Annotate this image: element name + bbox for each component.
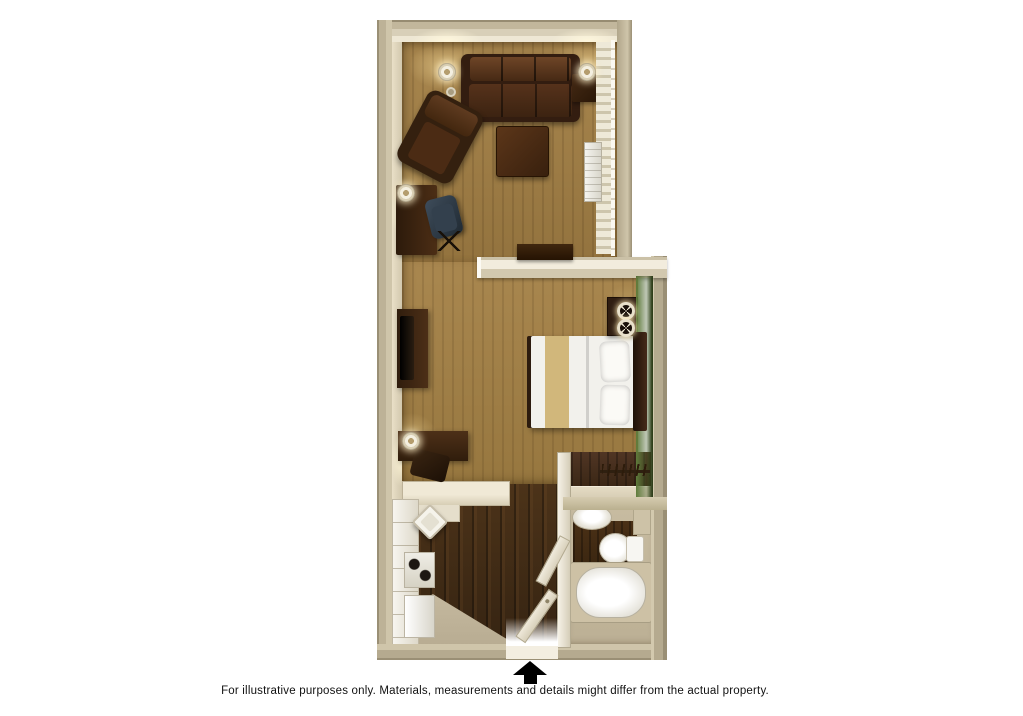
entrance-arrow-stem — [524, 675, 537, 684]
tv — [400, 316, 414, 380]
desk-chair-base — [437, 231, 461, 251]
partition-wall — [477, 257, 667, 278]
entrance-arrow-icon — [513, 661, 547, 675]
smoke-detector-icon — [446, 87, 456, 97]
pillow — [599, 340, 631, 383]
bathroom-top-wall — [563, 497, 667, 510]
headboard — [633, 332, 647, 431]
refrigerator — [404, 595, 435, 638]
desk-lamp-icon — [397, 184, 415, 202]
table-lamp-icon — [402, 432, 420, 450]
clothes-hangers — [602, 464, 650, 476]
stove — [404, 552, 435, 588]
floor-plan-image: For illustrative purposes only. Material… — [0, 0, 1023, 716]
bathroom-ledge — [633, 507, 651, 535]
table-lamp-icon — [438, 63, 456, 81]
wall-left — [377, 20, 392, 660]
bedside-lamp-icon — [617, 302, 635, 320]
table-lamp-icon — [578, 63, 596, 81]
wall-right-lower — [651, 256, 667, 660]
console-table — [517, 244, 573, 260]
bedside-lamp-icon — [617, 319, 635, 337]
toilet-tank — [626, 536, 644, 562]
wall-right-upper — [617, 20, 632, 262]
ac-unit — [584, 142, 602, 202]
coffee-table — [496, 126, 549, 177]
bathtub — [576, 567, 646, 618]
disclaimer-text: For illustrative purposes only. Material… — [0, 685, 990, 697]
pillow — [599, 384, 630, 425]
window — [611, 40, 615, 256]
wall-top — [377, 20, 630, 42]
